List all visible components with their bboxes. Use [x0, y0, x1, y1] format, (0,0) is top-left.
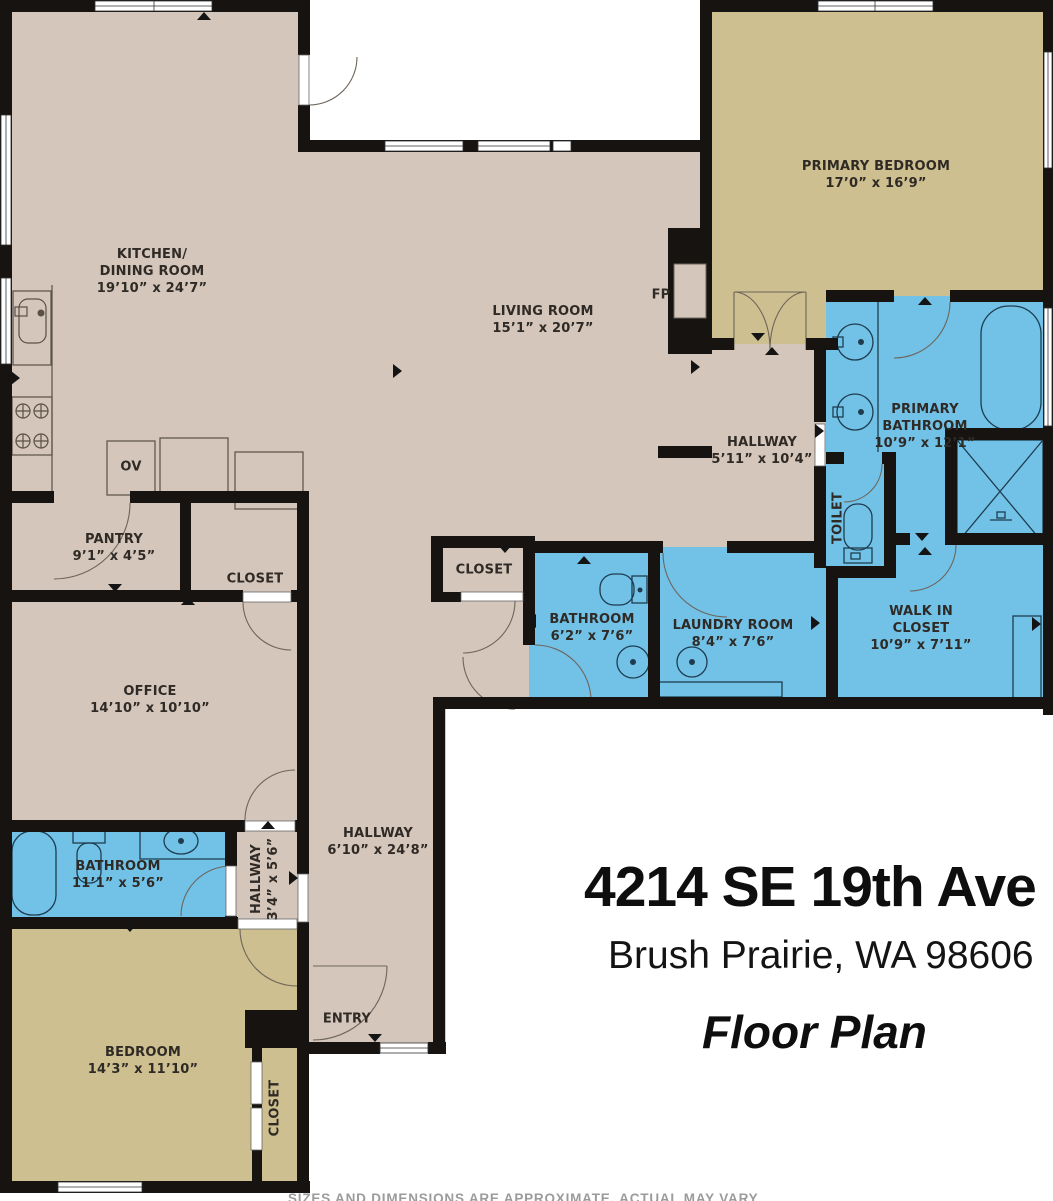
room-label-closet-pantry: CLOSET: [227, 555, 284, 606]
fireplace-inset: [674, 264, 706, 318]
room-label-toilet: TOILET: [814, 492, 865, 544]
room-label-kitchen: KITCHEN/ DINING ROOM19’10” x 24’7”: [97, 230, 208, 314]
room-label-entry: ENTRY: [323, 995, 371, 1046]
address-line: 4214 SE 19th Ave: [584, 858, 1036, 918]
room-label-hallway-upper: HALLWAY5’11” x 10’4”: [711, 418, 812, 486]
floor-plan-caption: Floor Plan: [702, 1008, 927, 1056]
room-label-hallway-small: HALLWAY3’4” x 5’6”: [232, 838, 300, 921]
room-label-laundry: LAUNDRY ROOM8’4” x 7’6”: [673, 601, 794, 669]
room-label-primary-bedroom: PRIMARY BEDROOM17’0” x 16’9”: [802, 142, 950, 210]
room-label-living: LIVING ROOM15’1” x 20’7”: [492, 287, 593, 355]
room-label-bathroom-center: BATHROOM6’2” x 7’6”: [549, 595, 634, 663]
room-label-walkin-closet: WALK IN CLOSET10’9” x 7’11”: [870, 587, 971, 671]
room-label-closet-bedroom: CLOSET: [251, 1080, 302, 1137]
room-label-pantry: PANTRY9’1” x 4’5”: [73, 515, 156, 583]
room-label-primary-bathroom: PRIMARY BATHROOM10’9” x 12’1”: [874, 385, 975, 469]
city-state-zip: Brush Prairie, WA 98606: [608, 936, 1034, 977]
room-label-closet-hall: CLOSET: [456, 546, 513, 597]
room-label-office: OFFICE14’10” x 10’10”: [90, 667, 210, 735]
room-label-bathroom-lower: BATHROOM11’1” x 5’6”: [72, 842, 164, 910]
room-label-bedroom: BEDROOM14’3” x 11’10”: [88, 1028, 199, 1096]
label-fireplace: FP: [652, 271, 671, 322]
floor-plan: KITCHEN/ DINING ROOM19’10” x 24’7” LIVIN…: [0, 0, 1053, 1201]
disclaimer-text: SIZES AND DIMENSIONS ARE APPROXIMATE, AC…: [288, 1192, 758, 1201]
room-label-hallway-lower: HALLWAY6’10” x 24’8”: [327, 809, 428, 877]
label-oven: OV: [120, 443, 141, 494]
